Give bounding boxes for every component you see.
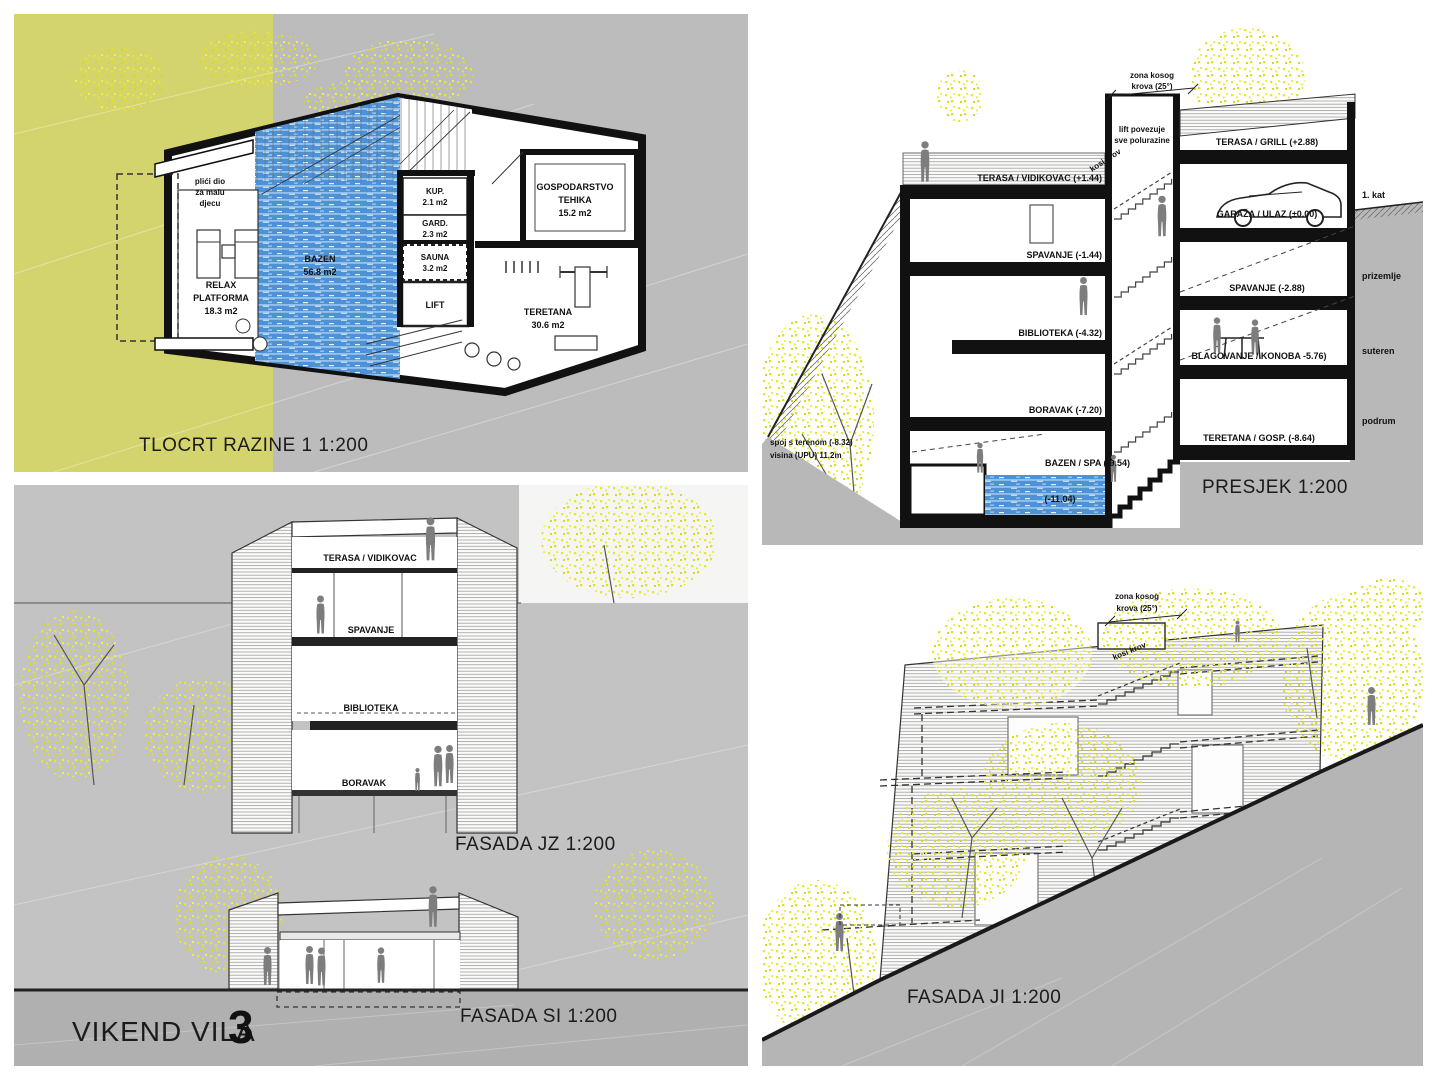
room-sauna (403, 245, 467, 280)
floor-label: BIBLIOTEKA (-4.32) (1018, 328, 1102, 338)
svg-text:30.6 m2: 30.6 m2 (531, 320, 564, 330)
plan-wall-slab (155, 338, 253, 350)
svg-text:sve polurazine: sve polurazine (1114, 136, 1170, 145)
side-table (222, 245, 235, 258)
terrain-note: spoj s terenom (-8.32) (770, 438, 853, 447)
level-tag: podrum (1362, 416, 1396, 426)
drawing-sheet: plići dio za malu djecu BAZEN 56.8 m2 RE… (0, 0, 1437, 1080)
section-panel: zona kosog krova (25°) lift povezuje sve… (762, 14, 1423, 545)
project-number: 3 (228, 1001, 254, 1053)
door (1030, 205, 1053, 243)
plan-circle-detail (236, 319, 250, 333)
svg-text:3.2 m2: 3.2 m2 (423, 264, 448, 273)
roof-zone-note: zona kosog (1130, 71, 1174, 80)
floor-plan-panel: plići dio za malu djecu BAZEN 56.8 m2 RE… (14, 14, 748, 472)
facades-panel: TERASA / VIDIKOVAC SPAVANJE BIBLIOTEKA B… (14, 485, 748, 1066)
floor-label: TERASA / VIDIKOVAC (323, 553, 417, 563)
floor-label: SPAVANJE (-2.88) (1229, 283, 1305, 293)
section-drawing: zona kosog krova (25°) lift povezuje sve… (762, 14, 1423, 545)
floor-label: TERETANA / GOSP. (-8.64) (1203, 433, 1315, 443)
floor-band (280, 932, 460, 940)
plant-room (910, 465, 985, 515)
section-title: PRESJEK 1:200 (1202, 477, 1348, 498)
level-tag: 1. kat (1362, 190, 1385, 200)
lounge-chair (235, 230, 258, 278)
svg-text:2.1 m2: 2.1 m2 (423, 198, 448, 207)
svg-text:djecu: djecu (200, 199, 221, 208)
label-shallow: plići dio (195, 177, 225, 186)
floor-label: BIBLIOTEKA (344, 703, 399, 713)
svg-text:15.2 m2: 15.2 m2 (558, 208, 591, 218)
svg-text:18.3 m2: 18.3 m2 (204, 306, 237, 316)
water-level-label: (-11.04) (1044, 494, 1075, 504)
floor-label: BORAVAK (342, 778, 387, 788)
roof-zone-note: zona kosog (1115, 592, 1159, 601)
plan-title: TLOCRT RAZINE 1 1:200 (139, 435, 368, 456)
facade-tower (232, 522, 292, 833)
label-gym: TERETANA (524, 307, 573, 317)
facade-ji-drawing: zona kosog krova (25°) kosi krov FASADA … (762, 558, 1423, 1066)
label-pool: BAZEN (305, 254, 336, 264)
facade-si-title: FASADA SI 1:200 (460, 1006, 617, 1027)
facade-jz: TERASA / VIDIKOVAC SPAVANJE BIBLIOTEKA B… (232, 517, 517, 833)
facade-ji-title: FASADA JI 1:200 (907, 987, 1061, 1008)
section-right-block (1180, 94, 1355, 460)
floor-label: TERASA / VIDIKOVAC (+1.44) (977, 173, 1102, 183)
plan-circle-detail (253, 337, 267, 351)
level-tag: suteren (1362, 346, 1395, 356)
facade-tower (457, 518, 517, 833)
facade-ji-panel: zona kosog krova (25°) kosi krov FASADA … (762, 558, 1423, 1066)
floor-label: BAZEN / SPA (-9.54) (1045, 458, 1130, 468)
svg-text:TEHIKA: TEHIKA (558, 195, 592, 205)
svg-text:krova (25°): krova (25°) (1132, 82, 1173, 91)
svg-text:56.8 m2: 56.8 m2 (303, 267, 336, 277)
lift-note: lift povezuje (1119, 125, 1166, 134)
label-gard: GARD. (422, 219, 448, 228)
label-utility: GOSPODARSTVO (536, 182, 613, 192)
facade-jz-title: FASADA JZ 1:200 (455, 834, 616, 855)
floor-plan-drawing: plići dio za malu djecu BAZEN 56.8 m2 RE… (14, 14, 748, 472)
facade-jz-si-drawing: TERASA / VIDIKOVAC SPAVANJE BIBLIOTEKA B… (14, 485, 748, 1066)
label-lift: LIFT (426, 300, 445, 310)
floor-label: BLAGOVANJE / KONOBA -5.76) (1191, 351, 1326, 361)
floor-label: GARAŽA / ULAZ (±0.00) (1217, 208, 1318, 219)
label-kup: KUP. (426, 187, 444, 196)
svg-text:PLATFORMA: PLATFORMA (193, 293, 249, 303)
svg-text:krova (25°): krova (25°) (1117, 604, 1158, 613)
svg-text:za malu: za malu (195, 188, 224, 197)
floor-label: SPAVANJE (348, 625, 395, 635)
level-tag: prizemlje (1362, 271, 1401, 281)
label-relax: RELAX (206, 280, 237, 290)
label-sauna: SAUNA (421, 253, 450, 262)
floor-label: SPAVANJE (-1.44) (1026, 250, 1102, 260)
floor-label: TERASA / GRILL (+2.88) (1216, 137, 1318, 147)
lounge-chair (197, 230, 220, 278)
room-kup (403, 178, 467, 215)
section-left-block (900, 153, 1110, 528)
svg-text:visina (UPU) 11.2m: visina (UPU) 11.2m (770, 451, 842, 460)
svg-text:2.3 m2: 2.3 m2 (423, 230, 448, 239)
floor-label: BORAVAK (-7.20) (1029, 405, 1102, 415)
